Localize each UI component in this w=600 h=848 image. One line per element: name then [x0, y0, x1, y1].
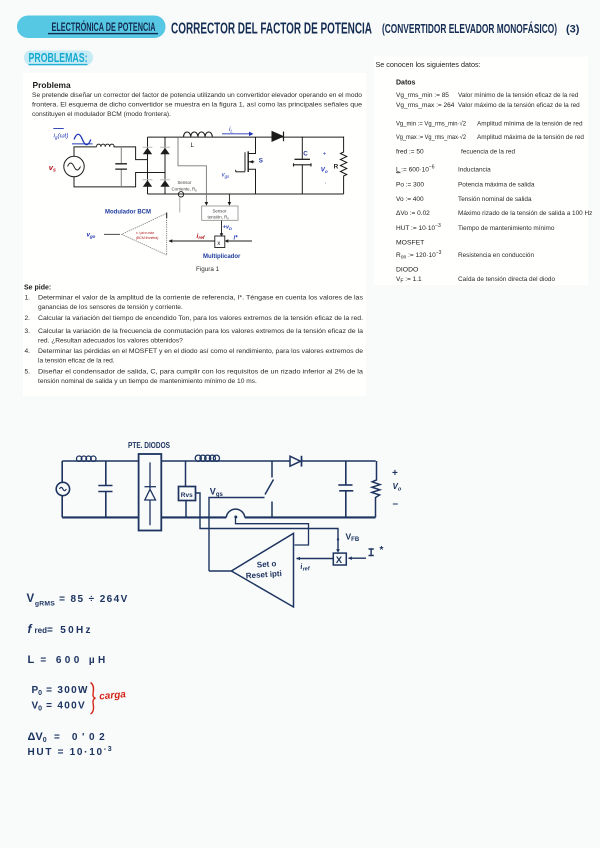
- svg-text:la tensión eficaz de la red.: la tensión eficaz de la red.: [38, 358, 115, 365]
- svg-text:(3): (3): [566, 24, 580, 36]
- svg-text:Se pretende diseñar un correct: Se pretende diseñar un corrector del fac…: [32, 92, 362, 99]
- svg-text:Vg_max := Vg_rms_max·√2: Vg_max := Vg_rms_max·√2: [396, 133, 466, 141]
- svg-text:Rvs: Rvs: [181, 492, 193, 499]
- svg-text:+: +: [392, 468, 398, 479]
- svg-text:Resistencia en conducción: Resistencia en conducción: [458, 252, 534, 259]
- svg-text:L = 600 µH: L = 600 µH: [28, 654, 109, 666]
- svg-text:S: S: [259, 158, 263, 165]
- svg-text:PTE. DIODOS: PTE. DIODOS: [128, 440, 170, 450]
- svg-text:Valor mínimo de la tensión efi: Valor mínimo de la tensión eficaz de la …: [458, 92, 579, 99]
- svg-text:Tiempo de mantenimiento mínimo: Tiempo de mantenimiento mínimo: [458, 225, 555, 232]
- svg-text:(CONVERTIDOR ELEVADOR MONOFÁSI: (CONVERTIDOR ELEVADOR MONOFÁSICO): [382, 21, 557, 36]
- svg-text:X: X: [336, 555, 343, 566]
- svg-text:Diseñar el condensador de sali: Diseñar el condensador de salida, C, par…: [38, 368, 363, 375]
- svg-text:tensión nominal de salida y un: tensión nominal de salida y un tiempo de…: [38, 378, 257, 385]
- svg-text:HUT := 10·10−3: HUT := 10·10−3: [396, 223, 441, 232]
- svg-text:+vD: +vD: [223, 225, 232, 231]
- svg-text:Amplitud mínima de la tensión: Amplitud mínima de la tensión de red: [477, 120, 583, 127]
- svg-text:Se conocen los siguientes dato: Se conocen los siguientes datos:: [376, 60, 481, 69]
- svg-text:constituyen el modulador BCM (: constituyen el modulador BCM (modo front…: [32, 111, 171, 118]
- svg-text:3.: 3.: [25, 328, 31, 335]
- svg-text:Sensor: Sensor: [213, 208, 227, 213]
- svg-text:carga: carga: [99, 689, 127, 702]
- svg-text:C: C: [303, 151, 308, 158]
- svg-text:*: *: [380, 545, 384, 556]
- svg-text:Calcular la variación de la fr: Calcular la variación de la frecuencia d…: [38, 328, 363, 335]
- svg-text:Sensor: Sensor: [178, 180, 192, 185]
- svg-text:Vg_rms_min := 85: Vg_rms_min := 85: [396, 92, 449, 99]
- svg-text:fecuencia de la red: fecuencia de la red: [461, 149, 515, 156]
- svg-text:Tensión nominal de salida: Tensión nominal de salida: [458, 196, 532, 203]
- svg-text:Determinar el valor de la ampl: Determinar el valor de la amplitud de la…: [38, 295, 364, 302]
- svg-text:red. ¿Resultan adecuados los v: red. ¿Resultan adecuados los valores obt…: [38, 338, 183, 345]
- svg-text:± i pico máx: ± i pico máx: [136, 231, 154, 235]
- svg-text:Potencia máxima de salida: Potencia máxima de salida: [458, 181, 535, 188]
- svg-text:2.: 2.: [25, 315, 31, 322]
- svg-text:frontera. El esquema de dicho: frontera. El esquema de dicho convertido…: [32, 101, 362, 108]
- svg-text:Vg_rms_max := 264: Vg_rms_max := 264: [396, 102, 455, 109]
- svg-text:Inductancia: Inductancia: [458, 166, 491, 173]
- svg-text:HUT = 10·10-3: HUT = 10·10-3: [28, 746, 114, 758]
- svg-text:DIODO: DIODO: [396, 266, 418, 273]
- svg-text:CORRECTOR DEL FACTOR DE POTENC: CORRECTOR DEL FACTOR DE POTENCIA: [171, 21, 372, 38]
- svg-text:Vo := 400: Vo := 400: [396, 196, 424, 203]
- svg-text:Figura 1: Figura 1: [196, 266, 220, 273]
- svg-text:ganancias de los sensores de t: ganancias de los sensores de tensión y c…: [38, 304, 183, 311]
- svg-text:Calcular la variación del tiem: Calcular la variación del tiempo de ence…: [38, 315, 363, 322]
- svg-text:= 50Hz: = 50Hz: [47, 625, 93, 636]
- svg-text:R: R: [334, 163, 339, 170]
- svg-text:–: –: [393, 499, 399, 510]
- svg-text:Amplitud máxima de la tensión: Amplitud máxima de la tensión de red: [477, 134, 584, 141]
- svg-text:Máximo rizado de la tensión de: Máximo rizado de la tensión de salida a …: [458, 210, 592, 217]
- svg-text:MOSFET: MOSFET: [396, 240, 424, 247]
- svg-text:Se pide:: Se pide:: [24, 285, 51, 292]
- svg-text:L: L: [191, 142, 195, 149]
- svg-text:Set o: Set o: [257, 559, 277, 569]
- svg-text:Datos: Datos: [396, 80, 416, 87]
- svg-text:Vg_min := Vg_rms_min·√2: Vg_min := Vg_rms_min·√2: [396, 119, 466, 127]
- svg-text:Caída de tensión directa del d: Caída de tensión directa del diodo: [458, 276, 555, 283]
- svg-text:+: +: [323, 152, 327, 158]
- svg-text:red: red: [35, 626, 48, 635]
- svg-text:fred := 50: fred := 50: [396, 149, 424, 156]
- svg-text:1.: 1.: [25, 295, 31, 302]
- svg-text:Po := 300: Po := 300: [396, 181, 424, 188]
- svg-text:ELECTRÓNICA DE POTENCIA: ELECTRÓNICA DE POTENCIA: [52, 19, 156, 34]
- svg-text:i*: i*: [234, 236, 239, 242]
- svg-text:(BCM frontera): (BCM frontera): [136, 236, 158, 240]
- svg-text:4.: 4.: [25, 348, 31, 355]
- svg-text:5.: 5.: [25, 368, 31, 375]
- svg-text:ΔV0 = 0'02: ΔV0 = 0'02: [28, 731, 110, 744]
- svg-text:PROBLEMAS:: PROBLEMAS:: [29, 50, 88, 65]
- svg-text:Multiplicador: Multiplicador: [203, 254, 241, 260]
- svg-text:ΔVo := 0.02: ΔVo := 0.02: [396, 210, 430, 217]
- svg-text:Determinar las pérdidas en el: Determinar las pérdidas en el MOSFET y e…: [38, 348, 363, 355]
- svg-text:Valor máximo de la tensión efi: Valor máximo de la tensión eficaz de la …: [458, 102, 580, 109]
- svg-text:Problema: Problema: [33, 80, 72, 90]
- svg-text:Modulador BCM: Modulador BCM: [105, 210, 151, 216]
